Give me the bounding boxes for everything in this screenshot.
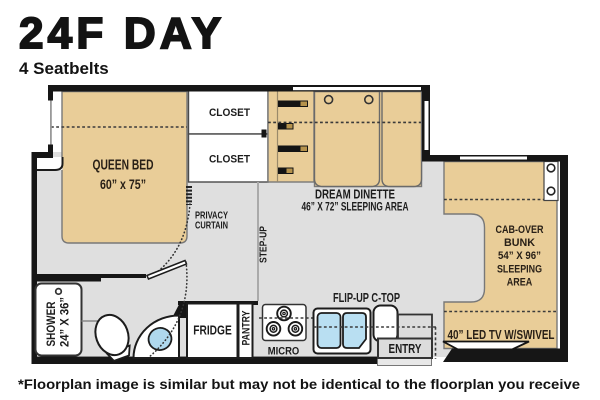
svg-text:PANTRY: PANTRY [241, 310, 253, 346]
svg-text:SHOWER: SHOWER [46, 301, 58, 347]
svg-text:CLOSET: CLOSET [209, 107, 250, 119]
svg-text:BUNK: BUNK [504, 237, 535, 249]
svg-text:SLEEPING: SLEEPING [497, 264, 542, 276]
svg-text:24F DAY: 24F DAY [19, 9, 225, 58]
svg-text:CURTAIN: CURTAIN [195, 221, 228, 232]
svg-text:CAB-OVER: CAB-OVER [496, 224, 544, 236]
svg-text:QUEEN BED: QUEEN BED [93, 158, 154, 174]
svg-text:4 Seatbelts: 4 Seatbelts [19, 59, 109, 78]
svg-text:54” X 96”: 54” X 96” [498, 250, 541, 262]
svg-text:STEP-UP: STEP-UP [258, 226, 270, 263]
svg-text:FLIP-UP C-TOP: FLIP-UP C-TOP [333, 290, 400, 305]
svg-text:46” X 72” SLEEPING AREA: 46” X 72” SLEEPING AREA [302, 200, 409, 214]
svg-text:AREA: AREA [507, 276, 533, 288]
svg-text:60” x 75”: 60” x 75” [100, 176, 146, 192]
svg-text:MICRO: MICRO [268, 346, 300, 358]
svg-text:ENTRY: ENTRY [389, 342, 423, 356]
svg-text:FRIDGE: FRIDGE [193, 324, 232, 338]
svg-text:*Floorplan image is similar bu: *Floorplan image is similar but may not … [18, 377, 580, 393]
svg-text:24” X 36”: 24” X 36” [60, 297, 72, 347]
svg-text:40” LED TV W/SWIVEL: 40” LED TV W/SWIVEL [448, 327, 555, 342]
svg-text:CLOSET: CLOSET [209, 154, 250, 166]
